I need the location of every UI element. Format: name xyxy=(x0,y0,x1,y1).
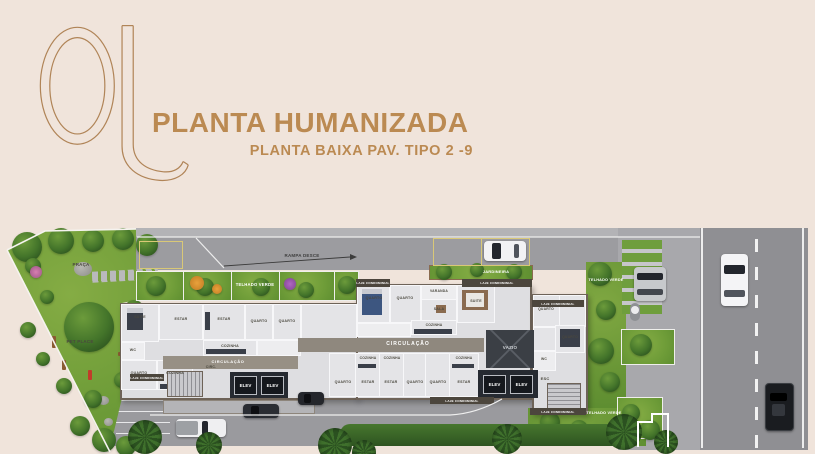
room-label: COZINHA xyxy=(384,357,401,360)
tree xyxy=(112,228,134,250)
tree xyxy=(92,428,116,452)
elevator: ELEV xyxy=(261,376,284,395)
q-outline-logo xyxy=(24,12,196,194)
room xyxy=(258,341,300,355)
scooter xyxy=(630,303,640,321)
car-dark-2 xyxy=(298,392,324,405)
tree xyxy=(48,228,74,254)
pet-place-label: PET PLACE xyxy=(66,340,93,345)
car-silver-parked xyxy=(634,267,666,301)
elevator-label: ELEV xyxy=(267,383,279,388)
stone xyxy=(104,418,113,426)
tree xyxy=(596,300,616,320)
kitchen-counter xyxy=(358,364,376,368)
laje-label: LAJE CONDOMINIAL xyxy=(541,302,574,306)
tree xyxy=(56,378,72,394)
kitchen-counter xyxy=(206,349,246,354)
jardineira-label: JARDINEIRA xyxy=(483,270,509,274)
room xyxy=(404,354,426,396)
telhado-verde-label: TELHADO VERDE xyxy=(588,279,623,283)
elevator-label: ELEV xyxy=(516,382,528,387)
tree xyxy=(436,264,452,280)
pillow xyxy=(127,308,143,313)
rampa-desce-label: RAMPA DESCE xyxy=(285,254,320,259)
tree xyxy=(84,390,102,408)
orange-flowers xyxy=(212,284,222,294)
room-label: COZINHA xyxy=(166,372,184,376)
parking-stall xyxy=(433,238,482,266)
palm-tree xyxy=(606,414,642,450)
laje-label: LAJE CONDOMINIAL xyxy=(480,281,513,285)
circ-label: CIRC. xyxy=(206,366,217,370)
room-label: QUARTO xyxy=(131,372,148,376)
poster: PLANTA HUMANIZADA PLANTA BAIXA PAV. TIPO… xyxy=(0,0,815,454)
laje-strip: LAJE CONDOMINIAL xyxy=(356,279,390,287)
laje-strip: LAJE CONDOMINIAL xyxy=(430,397,494,404)
elevator-core-left: ELEV ELEV xyxy=(230,372,288,398)
room-label: WC xyxy=(130,349,136,353)
room-label: COZINHA xyxy=(221,345,239,349)
room xyxy=(426,354,450,396)
car-white-parked xyxy=(484,241,526,261)
room-label: QUARTO xyxy=(335,381,352,385)
elevator: ELEV xyxy=(510,375,533,394)
room-label: QUARTO xyxy=(397,297,414,301)
entrance-lobby xyxy=(163,400,315,414)
laje-label: LAJE CONDOMINIAL xyxy=(445,399,478,403)
laje-strip: LAJE CONDOMINIAL xyxy=(530,408,586,415)
room-label: QUARTO xyxy=(366,297,383,301)
palm-tree xyxy=(654,430,678,454)
tree xyxy=(82,230,104,252)
tree xyxy=(298,282,314,298)
room-label: QUARTO xyxy=(538,308,554,311)
laje-strip: LAJE CONDOMINIAL xyxy=(462,279,532,287)
room-label: ESTAR xyxy=(218,318,231,322)
tree xyxy=(600,372,620,392)
bush-band xyxy=(340,424,640,446)
room-label: QUARTO xyxy=(279,320,296,324)
room-label: SUITE xyxy=(470,300,482,304)
stairs xyxy=(548,384,580,408)
elevator: ELEV xyxy=(483,375,506,394)
orange-flowers xyxy=(190,276,204,290)
car-black-road xyxy=(765,383,794,431)
room-label: VARANDA xyxy=(430,290,448,293)
page-subtitle: PLANTA BAIXA PAV. TIPO 2 -9 xyxy=(150,143,473,159)
tree xyxy=(64,302,114,352)
laje-label: LAJE CONDOMINIAL xyxy=(541,410,574,414)
elevator-label: ELEV xyxy=(489,382,501,387)
road-edge-right xyxy=(802,228,804,448)
elevator-core-right: ELEV ELEV xyxy=(478,370,538,398)
laje-label: LAJE CONDOMINIAL xyxy=(356,281,389,285)
bench xyxy=(62,360,66,370)
tree xyxy=(70,416,90,436)
room-label: SALA xyxy=(434,308,445,312)
tree xyxy=(40,290,54,304)
room-label: COZINHA xyxy=(426,324,443,327)
room-label: QUARTO xyxy=(430,381,447,385)
pillow xyxy=(362,289,382,294)
room xyxy=(160,305,202,339)
elevator-label: ELEV xyxy=(240,383,252,388)
telhado-verde-label: TELHADO VERDE xyxy=(236,283,274,287)
room-label: COZINHA xyxy=(456,357,473,360)
room xyxy=(330,354,356,396)
room-label: ESTAR xyxy=(385,381,398,385)
room-label: WC xyxy=(541,358,547,361)
flower-bush xyxy=(30,266,42,278)
palm-tree xyxy=(128,420,162,454)
praca-label: PRAÇA xyxy=(72,263,89,268)
car-white-road xyxy=(721,254,748,306)
tree xyxy=(588,338,614,364)
purple-flowers xyxy=(284,278,296,290)
kitchen-counter xyxy=(414,329,452,334)
telhado-verde-label: TELHADO VERDE xyxy=(586,412,621,416)
room-label: COZINHA xyxy=(360,357,377,360)
room-label: ESTAR xyxy=(175,318,188,322)
tree xyxy=(338,276,356,294)
bench xyxy=(52,336,56,348)
page-title: PLANTA HUMANIZADA xyxy=(152,107,468,139)
tree xyxy=(20,322,36,338)
vazio-label: VAZIO xyxy=(503,346,517,351)
room-label: QUARTO xyxy=(251,320,268,324)
room xyxy=(391,286,420,322)
road-edge-left xyxy=(701,228,703,448)
stairs xyxy=(168,372,202,396)
room xyxy=(302,305,356,339)
room-label: ESTAR xyxy=(362,381,375,385)
palm-tree xyxy=(318,428,352,454)
palm-tree xyxy=(196,432,222,454)
room-label: QUARTO xyxy=(562,336,578,339)
circulacao-label: CIRCULAÇÃO xyxy=(386,342,430,347)
road-center-dashes xyxy=(755,230,758,448)
palm-tree xyxy=(492,424,522,454)
tree xyxy=(630,334,652,356)
room-label: SUITE xyxy=(134,316,146,320)
room xyxy=(358,324,410,336)
room xyxy=(204,305,244,339)
esc-label: ESC xyxy=(541,377,550,381)
circulacao-label: CIRCULAÇÃO xyxy=(212,360,245,364)
room xyxy=(534,328,555,350)
bench xyxy=(88,370,92,380)
room-label: QUARTO xyxy=(407,381,424,385)
room-label: ESTAR xyxy=(458,381,471,385)
elevator: ELEV xyxy=(234,376,257,395)
tree xyxy=(12,232,42,262)
ramp-box xyxy=(139,241,183,269)
car-dark-1 xyxy=(243,404,279,418)
kitchen-counter xyxy=(452,364,474,368)
sofa xyxy=(205,312,210,330)
laje-strip: LAJE CONDOMINIAL xyxy=(532,300,584,307)
tree xyxy=(146,276,166,296)
tree xyxy=(36,352,50,366)
laje-label: LAJE CONDOMINIAL xyxy=(130,376,163,380)
